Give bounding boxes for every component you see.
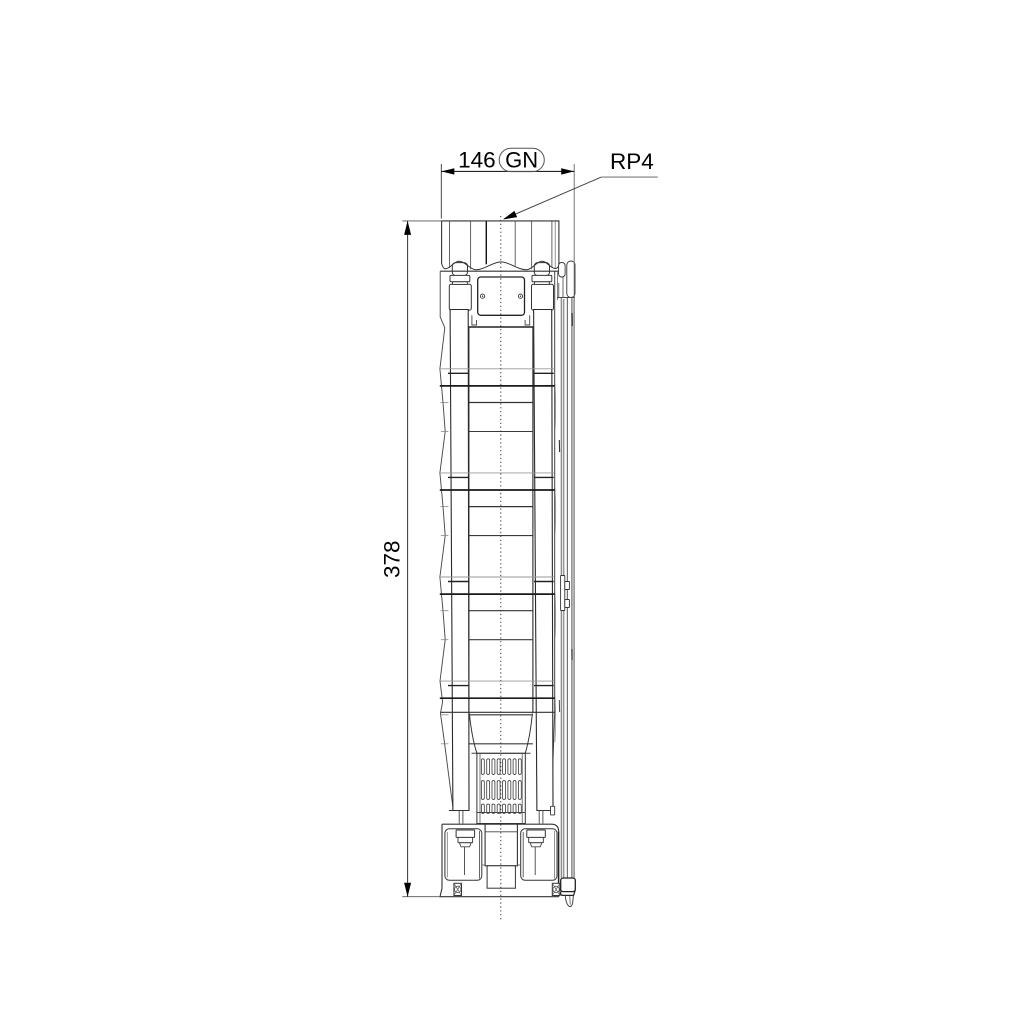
svg-text:RP4: RP4 xyxy=(610,149,654,174)
svg-text:146: 146 xyxy=(458,147,496,172)
svg-text:378: 378 xyxy=(379,540,404,578)
svg-text:GN: GN xyxy=(505,147,538,172)
